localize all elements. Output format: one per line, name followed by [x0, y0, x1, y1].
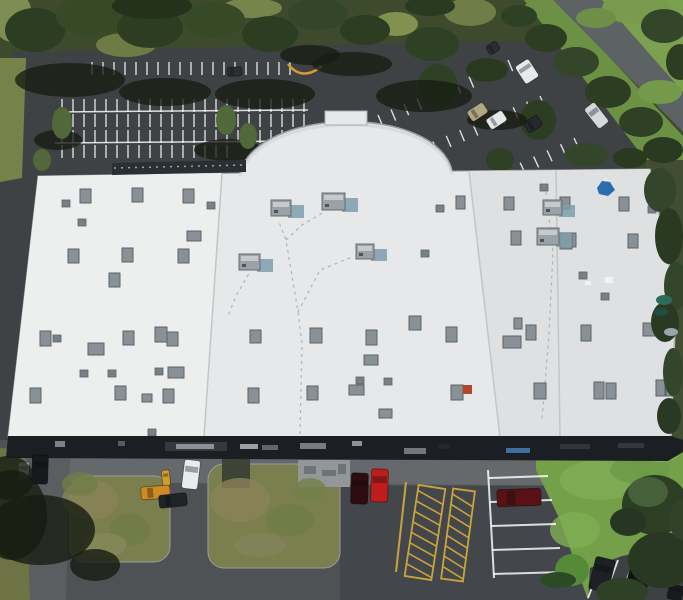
- tree-shadow: [15, 63, 125, 97]
- roof-small-vent: [579, 272, 587, 279]
- roof-skylight-vent: [379, 409, 392, 418]
- dock-door-mark: [262, 445, 278, 450]
- roof-skylight-vent: [123, 331, 134, 345]
- pad-debris: [338, 464, 346, 474]
- car-body: [350, 473, 368, 505]
- roof-skylight-vent: [606, 383, 616, 399]
- tree-canopy: [242, 16, 298, 52]
- car-body: [31, 455, 48, 485]
- roof-skylight-vent: [187, 231, 201, 241]
- car-body: [370, 469, 388, 503]
- lawn-texture: [550, 512, 600, 548]
- pad-debris: [322, 470, 336, 476]
- vehicle-car: [158, 493, 187, 509]
- vehicle-car: [497, 488, 542, 507]
- bush: [33, 149, 51, 171]
- roof-small-vent: [384, 378, 392, 385]
- tree-canopy: [644, 168, 676, 212]
- roof-skylight-vent: [514, 318, 522, 329]
- tree-canopy: [663, 348, 683, 396]
- tree-canopy: [657, 398, 681, 434]
- dock-door-mark: [176, 444, 214, 449]
- grass-texture: [234, 533, 286, 557]
- hvac-detail: [540, 239, 544, 242]
- pad-debris: [304, 466, 316, 474]
- car-body: [158, 493, 187, 509]
- grass-texture: [266, 504, 314, 536]
- roof-skylight-vent: [451, 385, 463, 400]
- grass-texture: [62, 472, 98, 496]
- tree-shadow: [215, 79, 315, 109]
- dock-door-mark: [404, 448, 426, 454]
- car-body: [181, 459, 200, 490]
- dock-door-mark: [118, 441, 125, 446]
- roof-skylight-vent: [349, 385, 364, 395]
- roof-skylight-vent: [109, 273, 120, 287]
- tree-canopy: [540, 572, 576, 588]
- vehicle-car: [181, 459, 200, 490]
- dome-top-structure: [325, 111, 367, 125]
- car-windshield: [34, 461, 47, 467]
- hvac-detail: [546, 209, 550, 212]
- roof-skylight-vent: [534, 383, 546, 399]
- tarp-highlight: [604, 178, 607, 181]
- dock-door-mark: [438, 444, 450, 449]
- tree-canopy: [5, 8, 65, 52]
- roof-skylight-vent: [250, 330, 261, 343]
- roof-skylight-vent: [168, 367, 184, 378]
- roof-skylight-vent: [594, 382, 604, 399]
- roof-skylight-vent: [456, 196, 465, 209]
- tree-shadow: [119, 78, 211, 106]
- roof-skylight-vent: [248, 388, 259, 403]
- roof-skylight-vent: [88, 343, 104, 355]
- roof-skylight-vent: [163, 389, 174, 403]
- roof-small-vent: [148, 429, 156, 436]
- roof-skylight-vent: [155, 327, 167, 342]
- vehicle-car: [31, 455, 48, 485]
- dumpster-glimpse: [656, 295, 672, 305]
- roof-small-vent: [436, 205, 444, 212]
- tree-canopy: [655, 208, 683, 264]
- grass-texture: [210, 478, 270, 522]
- roof-skylight-vent: [30, 388, 41, 403]
- roof-small-vent: [356, 377, 364, 384]
- car-windshield: [506, 491, 515, 505]
- hvac-top: [358, 246, 372, 251]
- hvac-detail: [325, 204, 329, 207]
- dock-door-mark: [618, 443, 644, 448]
- roof-small-vent: [601, 293, 609, 300]
- vehicle-car: [370, 469, 388, 503]
- car-body: [497, 488, 542, 507]
- tree-canopy: [183, 2, 245, 38]
- tree-canopy: [405, 27, 459, 61]
- vehicle-car: [350, 473, 368, 505]
- roof-skylight-vent: [503, 336, 521, 348]
- dock-door-mark: [55, 441, 65, 447]
- tree-canopy: [525, 24, 567, 52]
- loading-dock-layer: [6, 436, 683, 461]
- car-windshield: [353, 480, 367, 487]
- roof-skylight-vent: [511, 231, 521, 245]
- tree-canopy: [553, 47, 599, 77]
- dock-door-mark: [352, 441, 362, 446]
- tree-canopy: [564, 143, 608, 167]
- roof-skylight-vent: [364, 355, 378, 365]
- roof-small-vent: [540, 184, 548, 191]
- roof-skylight-vent: [446, 327, 457, 342]
- roof-skylight-vent: [40, 331, 51, 346]
- hvac-top: [545, 202, 560, 207]
- tree-canopy: [486, 148, 514, 172]
- car-windshield: [165, 496, 172, 507]
- roof-skylight-vent: [115, 386, 126, 400]
- aerial-scene-svg: [0, 0, 683, 600]
- tree-canopy: [501, 5, 537, 27]
- hvac-top: [539, 230, 557, 235]
- roof-skylight-vent: [122, 248, 133, 262]
- tree-shadow: [376, 80, 472, 112]
- roof-skylight-vent: [183, 189, 194, 203]
- roof-skylight-vent: [409, 316, 421, 330]
- roof-skylight-vent: [581, 325, 591, 341]
- hvac-top: [273, 202, 289, 207]
- roof-skylight-vent: [619, 197, 629, 211]
- roof-small-vent: [108, 370, 116, 377]
- tree-shadow: [70, 549, 120, 581]
- roof-skylight-vent: [178, 249, 189, 263]
- roof-white-mark: [585, 281, 591, 285]
- car-windshield: [163, 473, 168, 477]
- roof-skylight-vent: [167, 332, 178, 346]
- car-body: [227, 67, 242, 77]
- tree-canopy: [340, 15, 390, 45]
- roof-small-vent: [421, 250, 429, 257]
- roof-skylight-vent: [80, 189, 91, 203]
- red-roof-box: [463, 385, 472, 394]
- dock-door-mark: [240, 444, 258, 449]
- roof-skylight-vent: [526, 325, 536, 340]
- grass-patch: [638, 80, 682, 104]
- tree-canopy: [643, 137, 683, 163]
- car-windshield: [147, 488, 153, 498]
- bush: [239, 123, 257, 149]
- car-windshield: [230, 69, 233, 75]
- roof-skylight-vent: [142, 394, 152, 402]
- roof-skylight-vent: [628, 234, 638, 248]
- roof-skylight-vent: [656, 380, 665, 396]
- hvac-top: [324, 195, 343, 200]
- bush: [52, 107, 72, 139]
- hvac-detail: [242, 264, 246, 267]
- hvac-top: [241, 256, 258, 261]
- dock-door-mark: [560, 444, 590, 449]
- car-body: [161, 470, 170, 487]
- car-windshield: [373, 476, 387, 483]
- hvac-detail: [274, 210, 278, 213]
- aerial-photo-canvas: Aerial drone photograph of a large indus…: [0, 0, 683, 600]
- dumpster-glimpse: [664, 328, 678, 336]
- vehicle-car: [161, 470, 170, 487]
- hvac-detail: [359, 253, 363, 256]
- roof-white-mark: [605, 277, 613, 283]
- dock-door-mark: [300, 443, 326, 449]
- dock-door-mark: [506, 448, 530, 453]
- dumpster-glimpse: [654, 308, 668, 316]
- tree-canopy: [628, 477, 668, 507]
- roof-skylight-vent: [366, 330, 377, 345]
- roof-skylight-vent: [310, 328, 322, 343]
- grass-texture: [294, 478, 326, 502]
- roof-skylight-vent: [504, 197, 514, 210]
- tree-canopy: [610, 508, 646, 536]
- roof-small-vent: [80, 370, 88, 377]
- roof-small-vent: [62, 200, 70, 207]
- grass-patch: [576, 8, 616, 28]
- roof-skylight-vent: [132, 188, 143, 202]
- tree-canopy: [466, 58, 508, 82]
- tree-canopy: [651, 302, 679, 342]
- bush: [216, 105, 236, 135]
- tree-shadow: [280, 45, 340, 65]
- tree-canopy: [619, 107, 663, 137]
- roof-small-vent: [207, 202, 215, 209]
- roof-small-vent: [78, 219, 86, 226]
- roof-small-vent: [53, 335, 61, 342]
- tree-canopy: [613, 148, 647, 168]
- roof-small-vent: [155, 368, 163, 375]
- roof-skylight-vent: [68, 249, 79, 263]
- vehicle-car: [227, 67, 242, 77]
- roof-skylight-vent: [307, 386, 318, 400]
